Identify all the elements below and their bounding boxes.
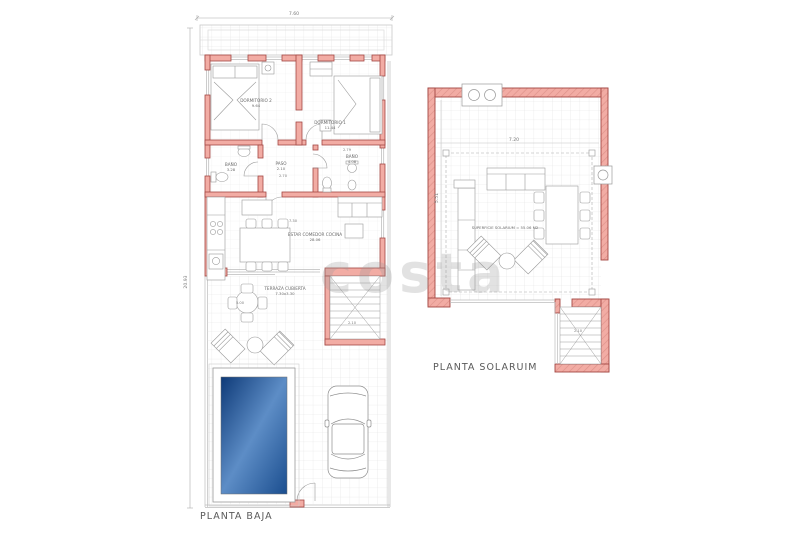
dim-bath: 2.79 (343, 148, 352, 152)
room-area-bano-left: 3.28 (227, 167, 236, 172)
solarium-dining-icon (534, 186, 590, 244)
pool (209, 364, 299, 506)
dim-living: 7.30 (289, 219, 298, 223)
room-area-dormitorio-1: 11.44 (325, 125, 336, 130)
kitchen-counter (207, 197, 225, 280)
solarium-surface-label: SUPERFICIE SOLARIUM = 55.06 M2 (472, 225, 539, 230)
dimension-left (187, 28, 193, 508)
sideboard (242, 200, 272, 215)
solarium-stairs-icon (560, 307, 601, 364)
vent-box-icon (462, 84, 502, 106)
car-icon (325, 386, 371, 478)
room-area-bano-right: 4.08 (348, 159, 357, 164)
solarium-plan: 7.20 5.51 SUPERFICIE (428, 84, 612, 373)
dim-solarium-width: 7.20 (509, 137, 519, 143)
dim-stairs: 2.10 (348, 321, 357, 325)
roof-band (200, 25, 392, 55)
dining-table-icon (240, 219, 290, 271)
dim-left-height: 20.93 (183, 275, 189, 288)
floorplan-sheet: 7.60 20.93 (0, 0, 800, 535)
solarium-sofa-icon (487, 168, 545, 190)
solarium-title: PLANTA SOLARUIM (433, 362, 538, 373)
wall-box-icon (594, 166, 612, 184)
floorplan-drawing: 7.60 20.93 (0, 0, 800, 535)
room-area-dormitorio-2: 9.64 (252, 103, 261, 108)
dim-solarium-height: 5.51 (434, 193, 440, 203)
dim-solarium-stairs: 2.10 (574, 329, 583, 333)
dim-terrace: 5.00 (236, 301, 245, 305)
ground-floor-title: PLANTA BAJA (200, 511, 273, 522)
dim-paso: 2.70 (279, 174, 288, 178)
room-dims-terraza: 7.30x3.30 (275, 291, 295, 296)
watermark-text: costa (320, 242, 509, 305)
solarium-boundary (450, 300, 558, 364)
room-area-paso: 2.10 (277, 166, 286, 171)
dim-top-width: 7.60 (289, 11, 299, 17)
